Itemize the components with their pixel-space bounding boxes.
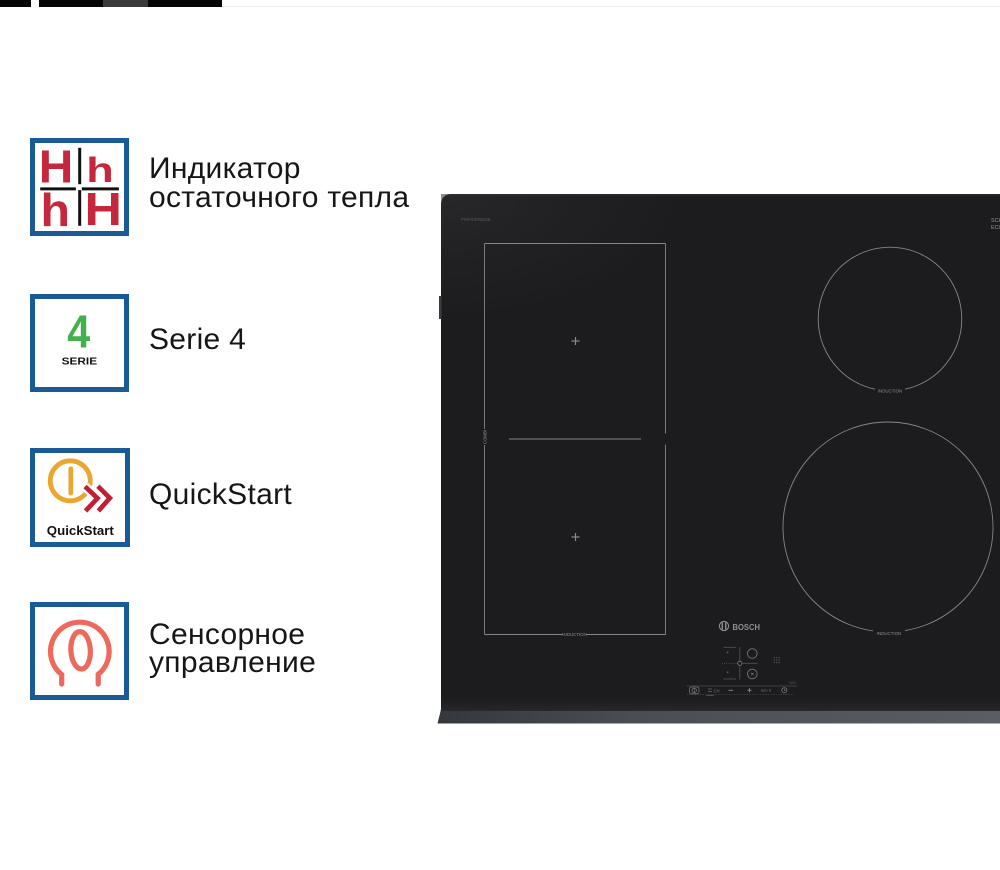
svg-text:SCH: SCH bbox=[991, 218, 1000, 224]
svg-text:INDUCTION: INDUCTION bbox=[877, 631, 901, 636]
svg-text:INDUCTION: INDUCTION bbox=[562, 632, 586, 637]
svg-text:PWP63RBB6E: PWP63RBB6E bbox=[461, 217, 491, 222]
svg-text:INDUCTION: INDUCTION bbox=[878, 389, 902, 394]
svg-text:h: h bbox=[41, 184, 71, 236]
svg-text:4: 4 bbox=[67, 306, 90, 358]
svg-text:ECO: ECO bbox=[991, 225, 1000, 231]
svg-text:COMBI: COMBI bbox=[483, 430, 488, 444]
svg-text:BOSCH: BOSCH bbox=[733, 622, 761, 632]
svg-text:QuickStart: QuickStart bbox=[47, 524, 115, 538]
svg-text:1400: 1400 bbox=[789, 681, 797, 685]
svg-text:SERIE: SERIE bbox=[62, 356, 98, 368]
svg-text:min 0: min 0 bbox=[761, 688, 772, 693]
svg-text:CH: CH bbox=[714, 688, 720, 693]
svg-text:H: H bbox=[85, 183, 123, 235]
